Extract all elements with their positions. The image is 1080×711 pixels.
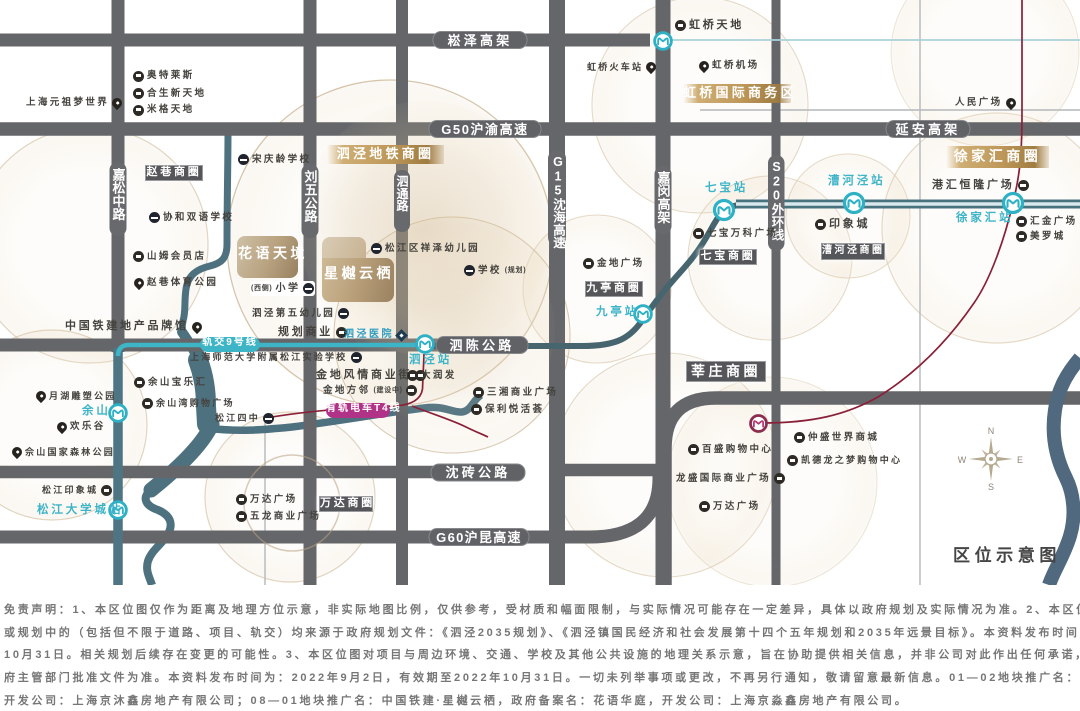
svg-text:N: N xyxy=(988,426,995,436)
svg-text:W: W xyxy=(958,455,967,465)
svg-text:E: E xyxy=(1017,455,1023,465)
svg-text:S: S xyxy=(988,482,994,492)
